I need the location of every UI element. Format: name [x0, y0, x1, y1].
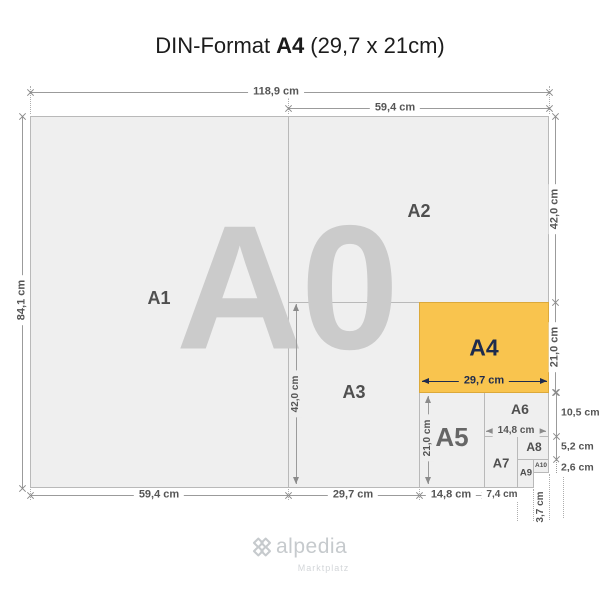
dim-a2-width-label: 59,4 cm	[370, 101, 420, 114]
arrow-left	[422, 378, 429, 384]
dim-a6-width-label: 14,8 cm	[493, 425, 540, 437]
watermark-a0: A0	[176, 200, 396, 377]
dim-a7-width-label: 7,4 cm	[481, 489, 522, 501]
arrow-right	[539, 428, 546, 434]
label-a4: A4	[469, 337, 498, 360]
page-title: DIN-Format A4 (29,7 x 21cm)	[0, 33, 600, 59]
dim-a5-width-label: 14,8 cm	[426, 488, 476, 501]
dim-a3-height-label: 42,0 cm	[290, 371, 302, 418]
din-format-diagram: DIN-Format A4 (29,7 x 21cm) A0 A1 A2 A3 …	[0, 0, 600, 600]
title-prefix: DIN-Format	[155, 33, 270, 59]
dim-a10-width-label: 3,7 cm	[535, 486, 547, 527]
logo: alpedia Marktplatz	[251, 536, 347, 558]
dim-a0-height-label: 84,1 cm	[15, 275, 28, 325]
label-a8: A8	[526, 441, 541, 453]
label-a3: A3	[342, 383, 365, 401]
arrow-down	[425, 477, 431, 484]
dim-small-heights-line	[556, 392, 557, 459]
dim-a4-height-label: 21,0 cm	[548, 322, 561, 372]
title-size-suffix: (29,7 x 21cm)	[310, 33, 445, 59]
logo-name-text: alpedia	[276, 535, 347, 558]
label-a5: A5	[435, 424, 468, 450]
guide-line	[549, 474, 550, 520]
guide-line	[563, 477, 564, 518]
dim-a0-width-label: 118,9 cm	[248, 85, 304, 98]
arrow-right	[540, 378, 547, 384]
label-a10: A10	[535, 463, 547, 470]
guide-line	[533, 489, 534, 521]
arrow-down	[293, 477, 299, 484]
logo-name: alpedia Marktplatz	[276, 536, 347, 558]
label-a7: A7	[493, 457, 510, 470]
dim-a2-height-label: 42,0 cm	[548, 184, 561, 234]
title-format-highlight: A4	[276, 33, 304, 59]
dim-a4-width-label: 29,7 cm	[459, 374, 509, 387]
dim-a8-height-label: 5,2 cm	[559, 441, 596, 454]
logo-tagline: Marktplatz	[298, 557, 350, 579]
dim-a10-height-label: 2,6 cm	[559, 462, 596, 475]
alpedia-clover-icon	[251, 536, 273, 558]
dim-a1-width-label: 59,4 cm	[134, 488, 184, 501]
arrow-up	[293, 304, 299, 311]
arrow-up	[425, 396, 431, 403]
dim-a3-width-label: 29,7 cm	[328, 488, 378, 501]
label-a6: A6	[511, 402, 529, 416]
dim-a5-height-label: 21,0 cm	[422, 415, 434, 462]
label-a1: A1	[147, 289, 170, 307]
label-a2: A2	[407, 202, 430, 220]
dim-a6-height-label: 10,5 cm	[559, 407, 600, 420]
label-a9: A9	[520, 468, 532, 478]
